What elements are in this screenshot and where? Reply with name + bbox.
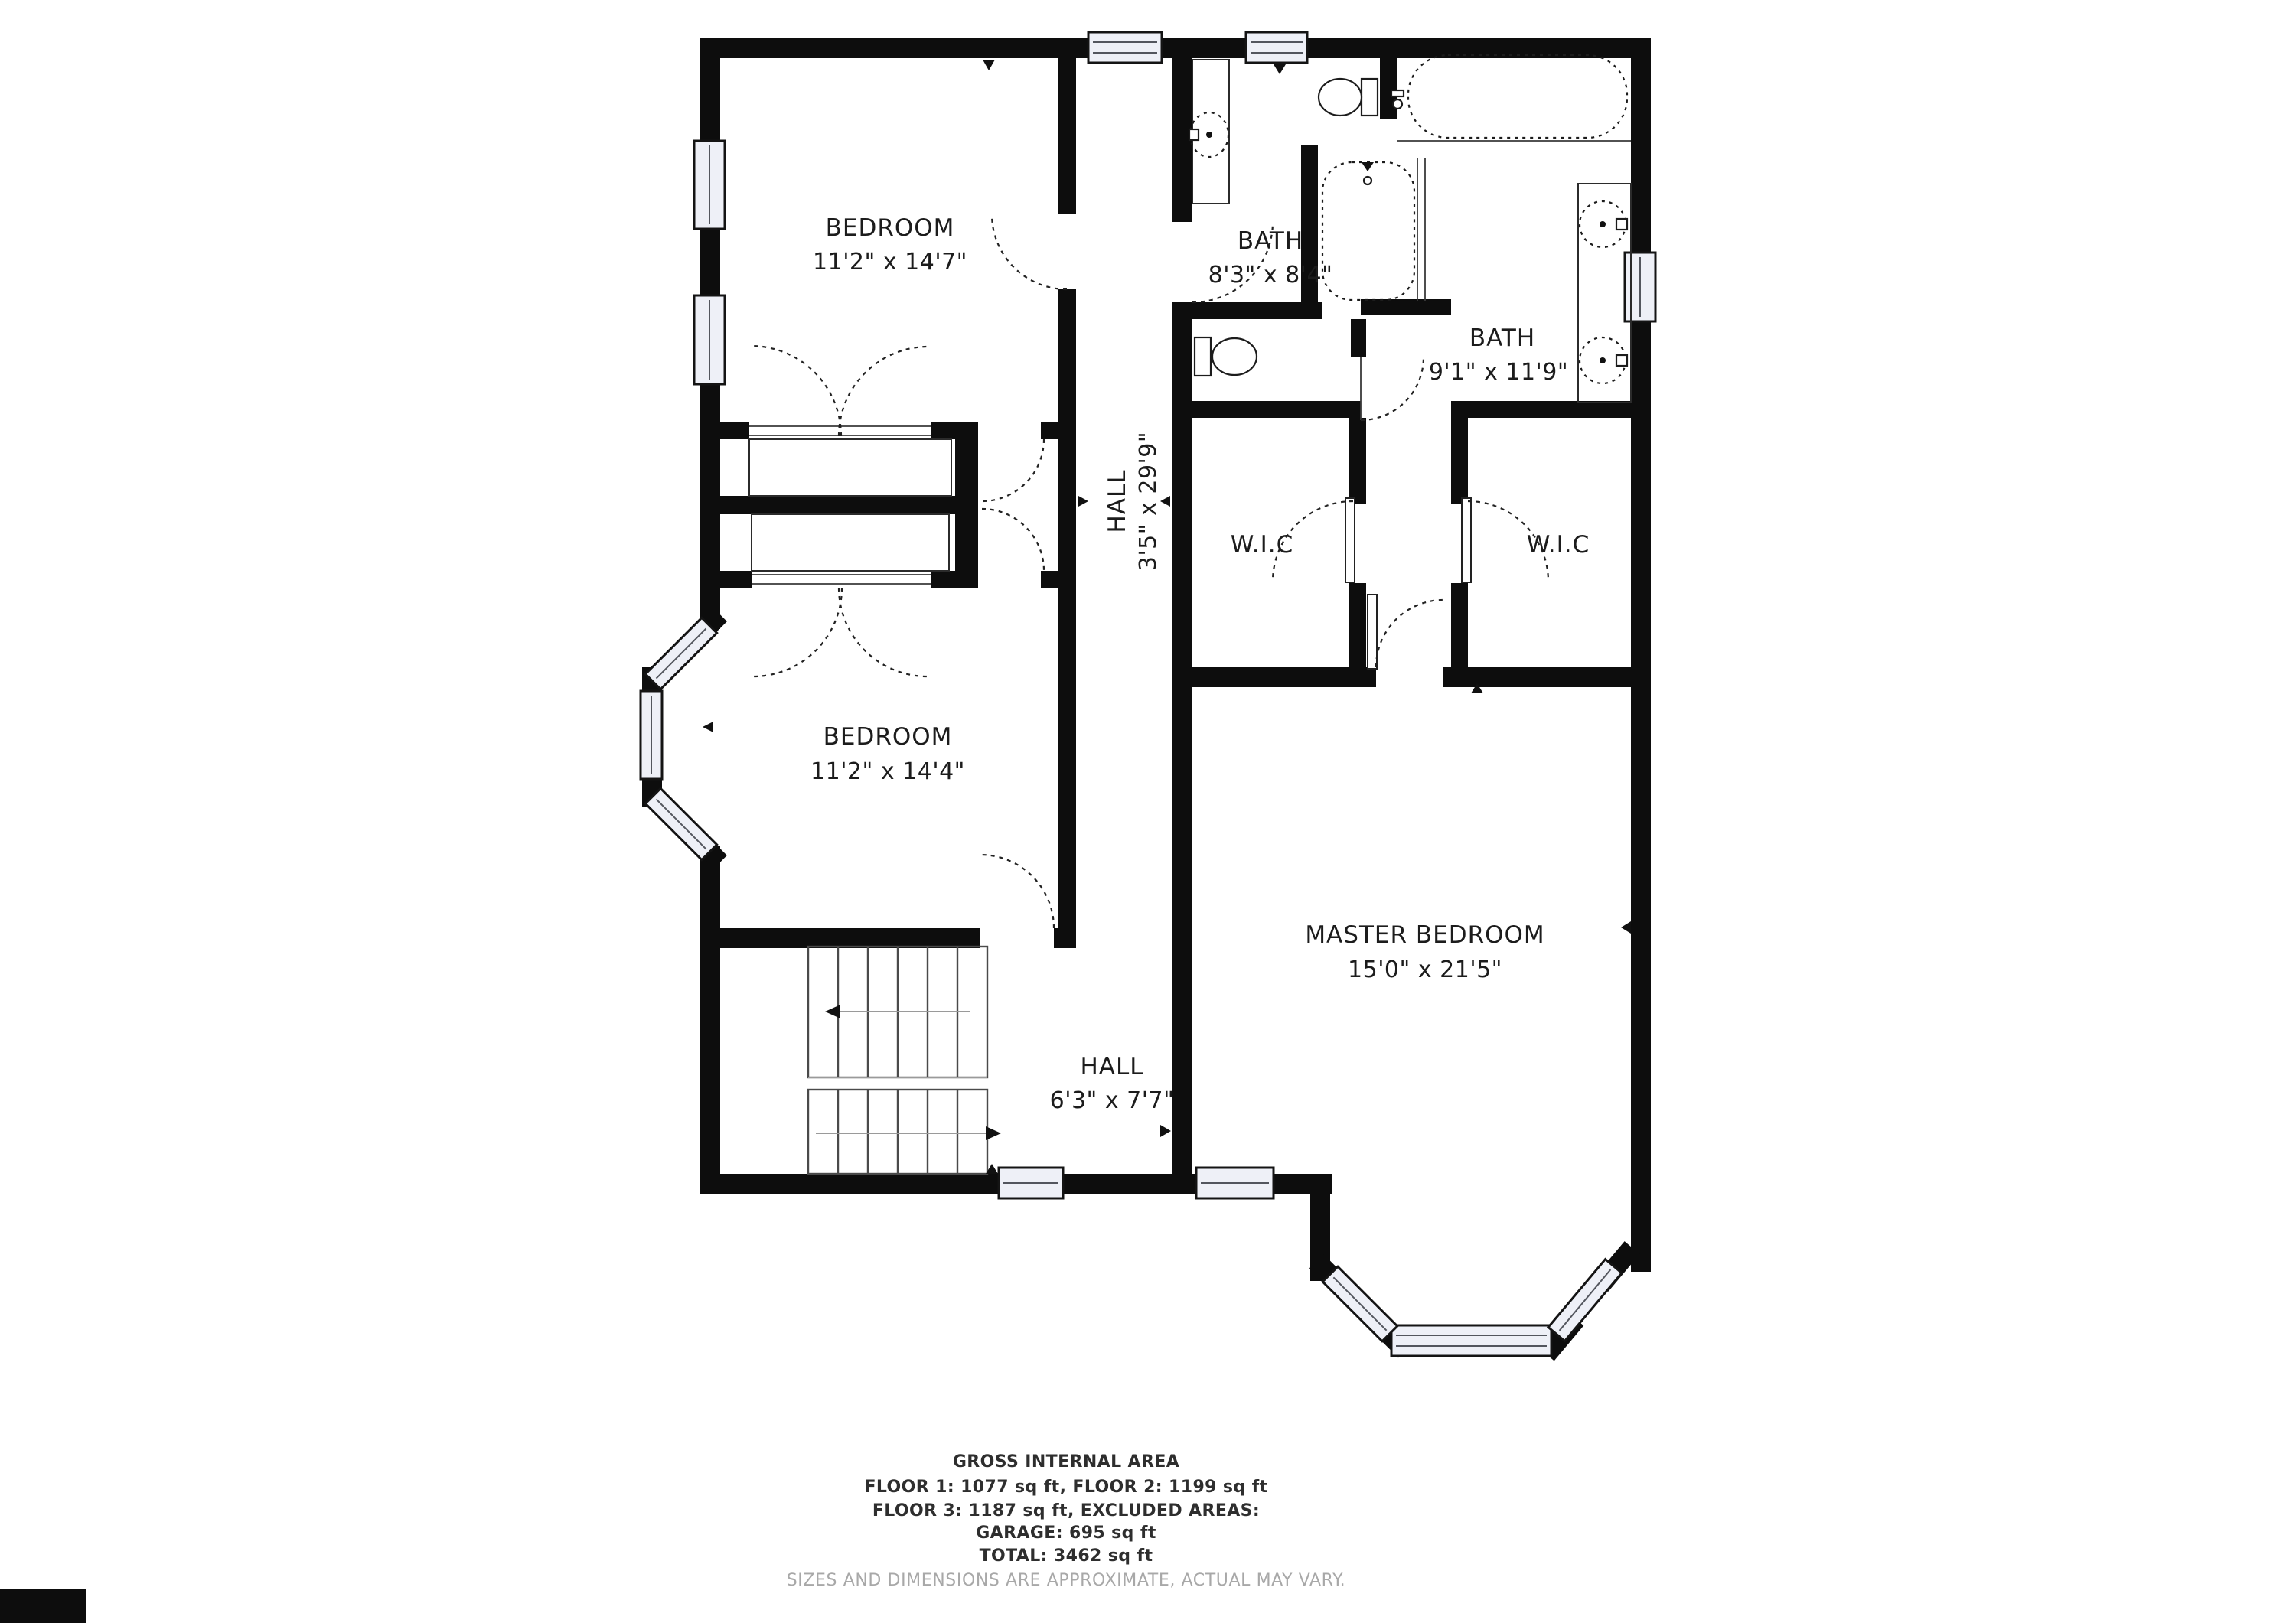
toilet-icon: [1195, 337, 1257, 376]
room-dims-bedroom-top: 11'2" x 14'7": [813, 249, 967, 275]
room-label-wic-right: W.I.C: [1527, 531, 1590, 559]
footer-total: TOTAL: 3462 sq ft: [980, 1546, 1153, 1566]
toilet-icon: [1319, 79, 1378, 116]
canvas-background: [0, 0, 2296, 1623]
room-label-master-bedroom: MASTER BEDROOM: [1305, 921, 1544, 949]
room-label-bath-top: BATH: [1238, 227, 1303, 255]
footer-disclaimer: SIZES AND DIMENSIONS ARE APPROXIMATE, AC…: [787, 1571, 1346, 1590]
wall-segment: [1349, 418, 1366, 504]
wall-segment: [1058, 289, 1076, 422]
footer-floor-1-2: FLOOR 1: 1077 sq ft, FLOOR 2: 1199 sq ft: [864, 1478, 1267, 1497]
wall-segment: [700, 928, 980, 948]
wall-segment: [1192, 667, 1376, 687]
window: [694, 141, 725, 229]
wall-segment: [712, 496, 978, 514]
wall-segment: [1172, 401, 1361, 418]
room-dims-bedroom-bottom: 11'2" x 14'4": [810, 758, 965, 785]
door-leaf: [1462, 498, 1471, 582]
window: [694, 295, 725, 384]
wall-segment: [1301, 145, 1318, 319]
room-dims-hall-lower: 6'3" x 7'7": [1050, 1087, 1175, 1114]
window: [999, 1168, 1063, 1198]
wall-segment: [1451, 401, 1631, 418]
floor-plan: BEDROOM 11'2" x 14'7" BATH 8'3" x 8'4" B…: [0, 0, 2296, 1623]
wall-segment: [931, 571, 978, 588]
wall-segment: [1182, 302, 1322, 319]
room-dims-bath-top: 8'3" x 8'4": [1208, 262, 1333, 288]
wall-segment: [1172, 302, 1192, 1194]
door-leaf: [1345, 498, 1355, 582]
room-label-hall-upper: HALL: [1104, 469, 1131, 533]
wall-segment: [1058, 38, 1076, 214]
room-dims-bath-master: 9'1" x 11'9": [1429, 359, 1568, 386]
wall-segment: [712, 422, 749, 439]
room-label-wic-left: W.I.C: [1231, 531, 1294, 559]
footer-floor-3: FLOOR 3: 1187 sq ft, EXCLUDED AREAS:: [872, 1501, 1260, 1520]
wall-segment: [1058, 439, 1076, 930]
room-label-bedroom-top: BEDROOM: [826, 214, 955, 242]
wall-segment: [1351, 319, 1366, 357]
window: [1196, 1168, 1274, 1198]
wall-segment: [700, 1174, 1194, 1194]
window: [1246, 32, 1307, 63]
room-label-bedroom-bottom: BEDROOM: [823, 723, 953, 751]
wall-segment: [1451, 583, 1468, 667]
wall-segment: [1361, 299, 1451, 315]
room-dims-master-bedroom: 15'0" x 21'5": [1348, 957, 1502, 983]
wall-segment: [1631, 38, 1651, 1272]
corner-black-bar: [0, 1589, 86, 1623]
wall-segment: [1054, 928, 1076, 948]
wall-segment: [1041, 422, 1076, 439]
wall-segment: [1443, 667, 1631, 687]
wall-segment: [712, 571, 752, 588]
wall-segment: [955, 439, 978, 571]
window: [1625, 253, 1655, 321]
room-label-bath-master: BATH: [1469, 324, 1535, 352]
wall-segment: [931, 422, 978, 439]
wall-segment: [1451, 418, 1468, 504]
page: { "meta": { "title": "Second floor plan"…: [0, 0, 2296, 1623]
wall-segment: [1349, 583, 1366, 667]
door-leaf: [1368, 595, 1377, 669]
window: [1088, 32, 1162, 63]
room-label-hall-lower: HALL: [1080, 1053, 1143, 1080]
room-dims-hall-upper: 3'5" x 29'9": [1135, 432, 1162, 571]
footer-garage: GARAGE: 695 sq ft: [976, 1524, 1156, 1543]
window: [641, 691, 662, 779]
window: [1391, 1325, 1551, 1356]
footer-gross-area-title: GROSS INTERNAL AREA: [953, 1452, 1179, 1471]
wall-segment: [700, 846, 720, 1194]
